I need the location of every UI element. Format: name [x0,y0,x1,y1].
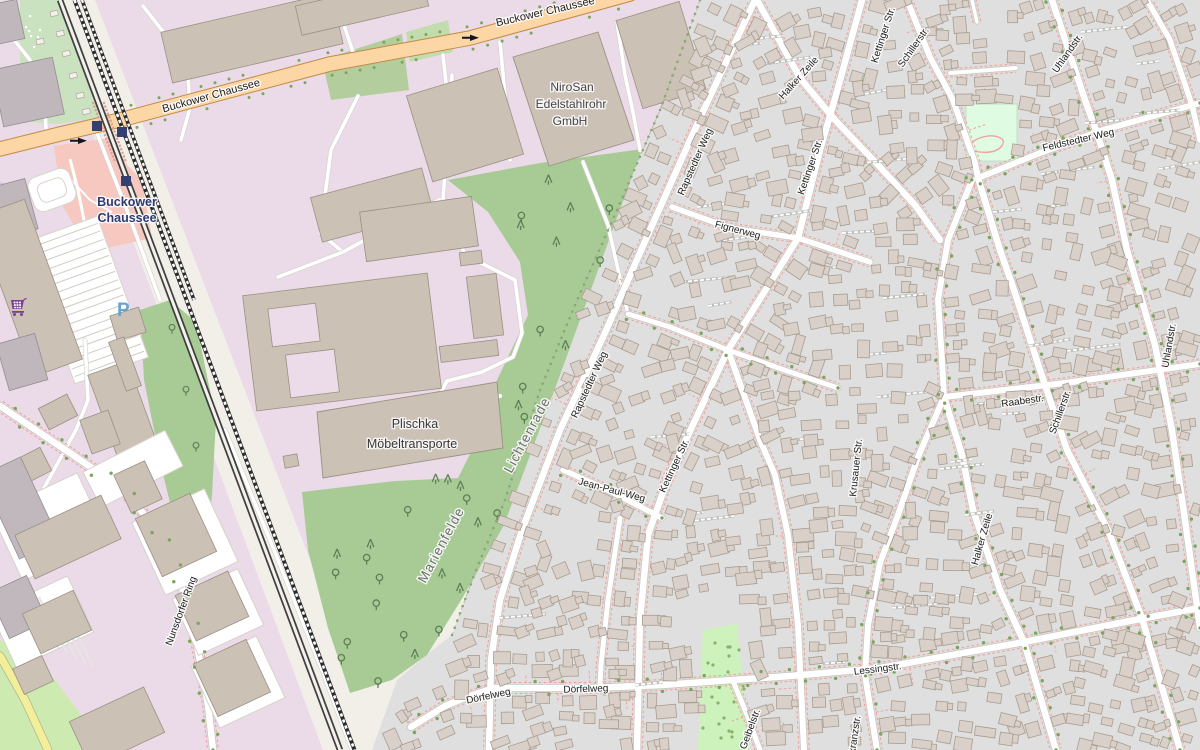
svg-text:Edelstahlrohr: Edelstahlrohr [536,97,607,111]
svg-text:Buckower: Buckower [97,195,157,209]
svg-text:NiroSan: NiroSan [550,80,593,94]
svg-text:Chaussee: Chaussee [97,211,156,225]
svg-text:Plischka: Plischka [392,417,439,431]
svg-text:P: P [117,300,130,321]
svg-text:Möbeltransporte: Möbeltransporte [367,437,457,451]
svg-text:Dörfelweg: Dörfelweg [563,683,608,696]
svg-text:GmbH: GmbH [553,114,588,128]
